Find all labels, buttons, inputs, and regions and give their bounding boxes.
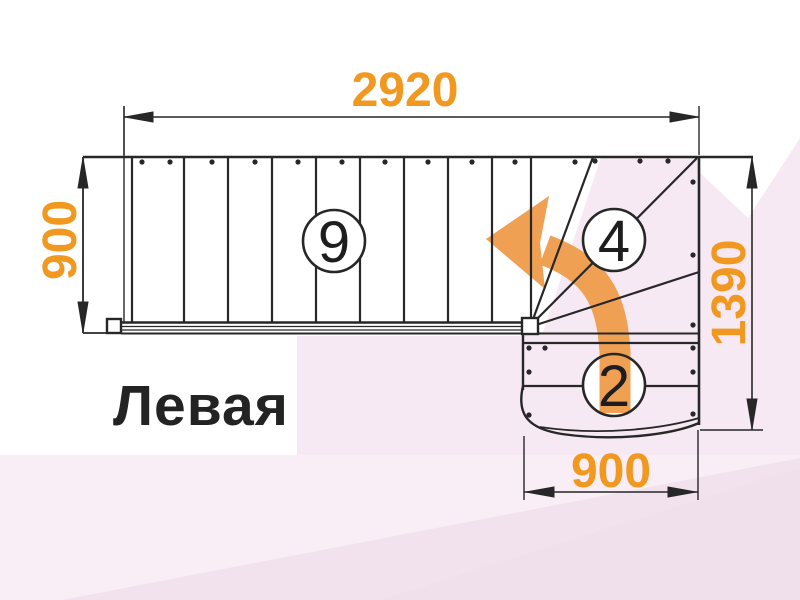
arrowhead	[78, 158, 88, 188]
straight-flight-step-count: 9	[318, 210, 350, 275]
background-shapes	[0, 138, 800, 600]
dim-right-height-label: 1390	[703, 240, 756, 347]
arrowhead	[670, 112, 698, 122]
dim-bottom-width-label: 900	[571, 445, 651, 498]
arrowhead	[125, 112, 153, 122]
newel-post-left	[107, 319, 121, 333]
winder-step-count: 4	[598, 209, 630, 274]
dim-left-height-label: 900	[34, 200, 87, 280]
arrowhead	[747, 158, 757, 188]
stringer-band	[121, 323, 522, 334]
dim-top-width-label: 2920	[352, 64, 459, 117]
turn-arrow-head	[486, 196, 549, 289]
page-title: Левая	[113, 374, 289, 438]
stair-plan-canvas: 9 4 2 2920 900 1390 900 Левая	[0, 0, 800, 600]
lower-flight-step-count: 2	[598, 354, 630, 419]
stair-plan-diagram: 9 4 2 2920 900 1390 900 Левая	[0, 0, 800, 600]
arrowhead	[78, 302, 88, 332]
newel-post-pivot	[522, 318, 538, 334]
